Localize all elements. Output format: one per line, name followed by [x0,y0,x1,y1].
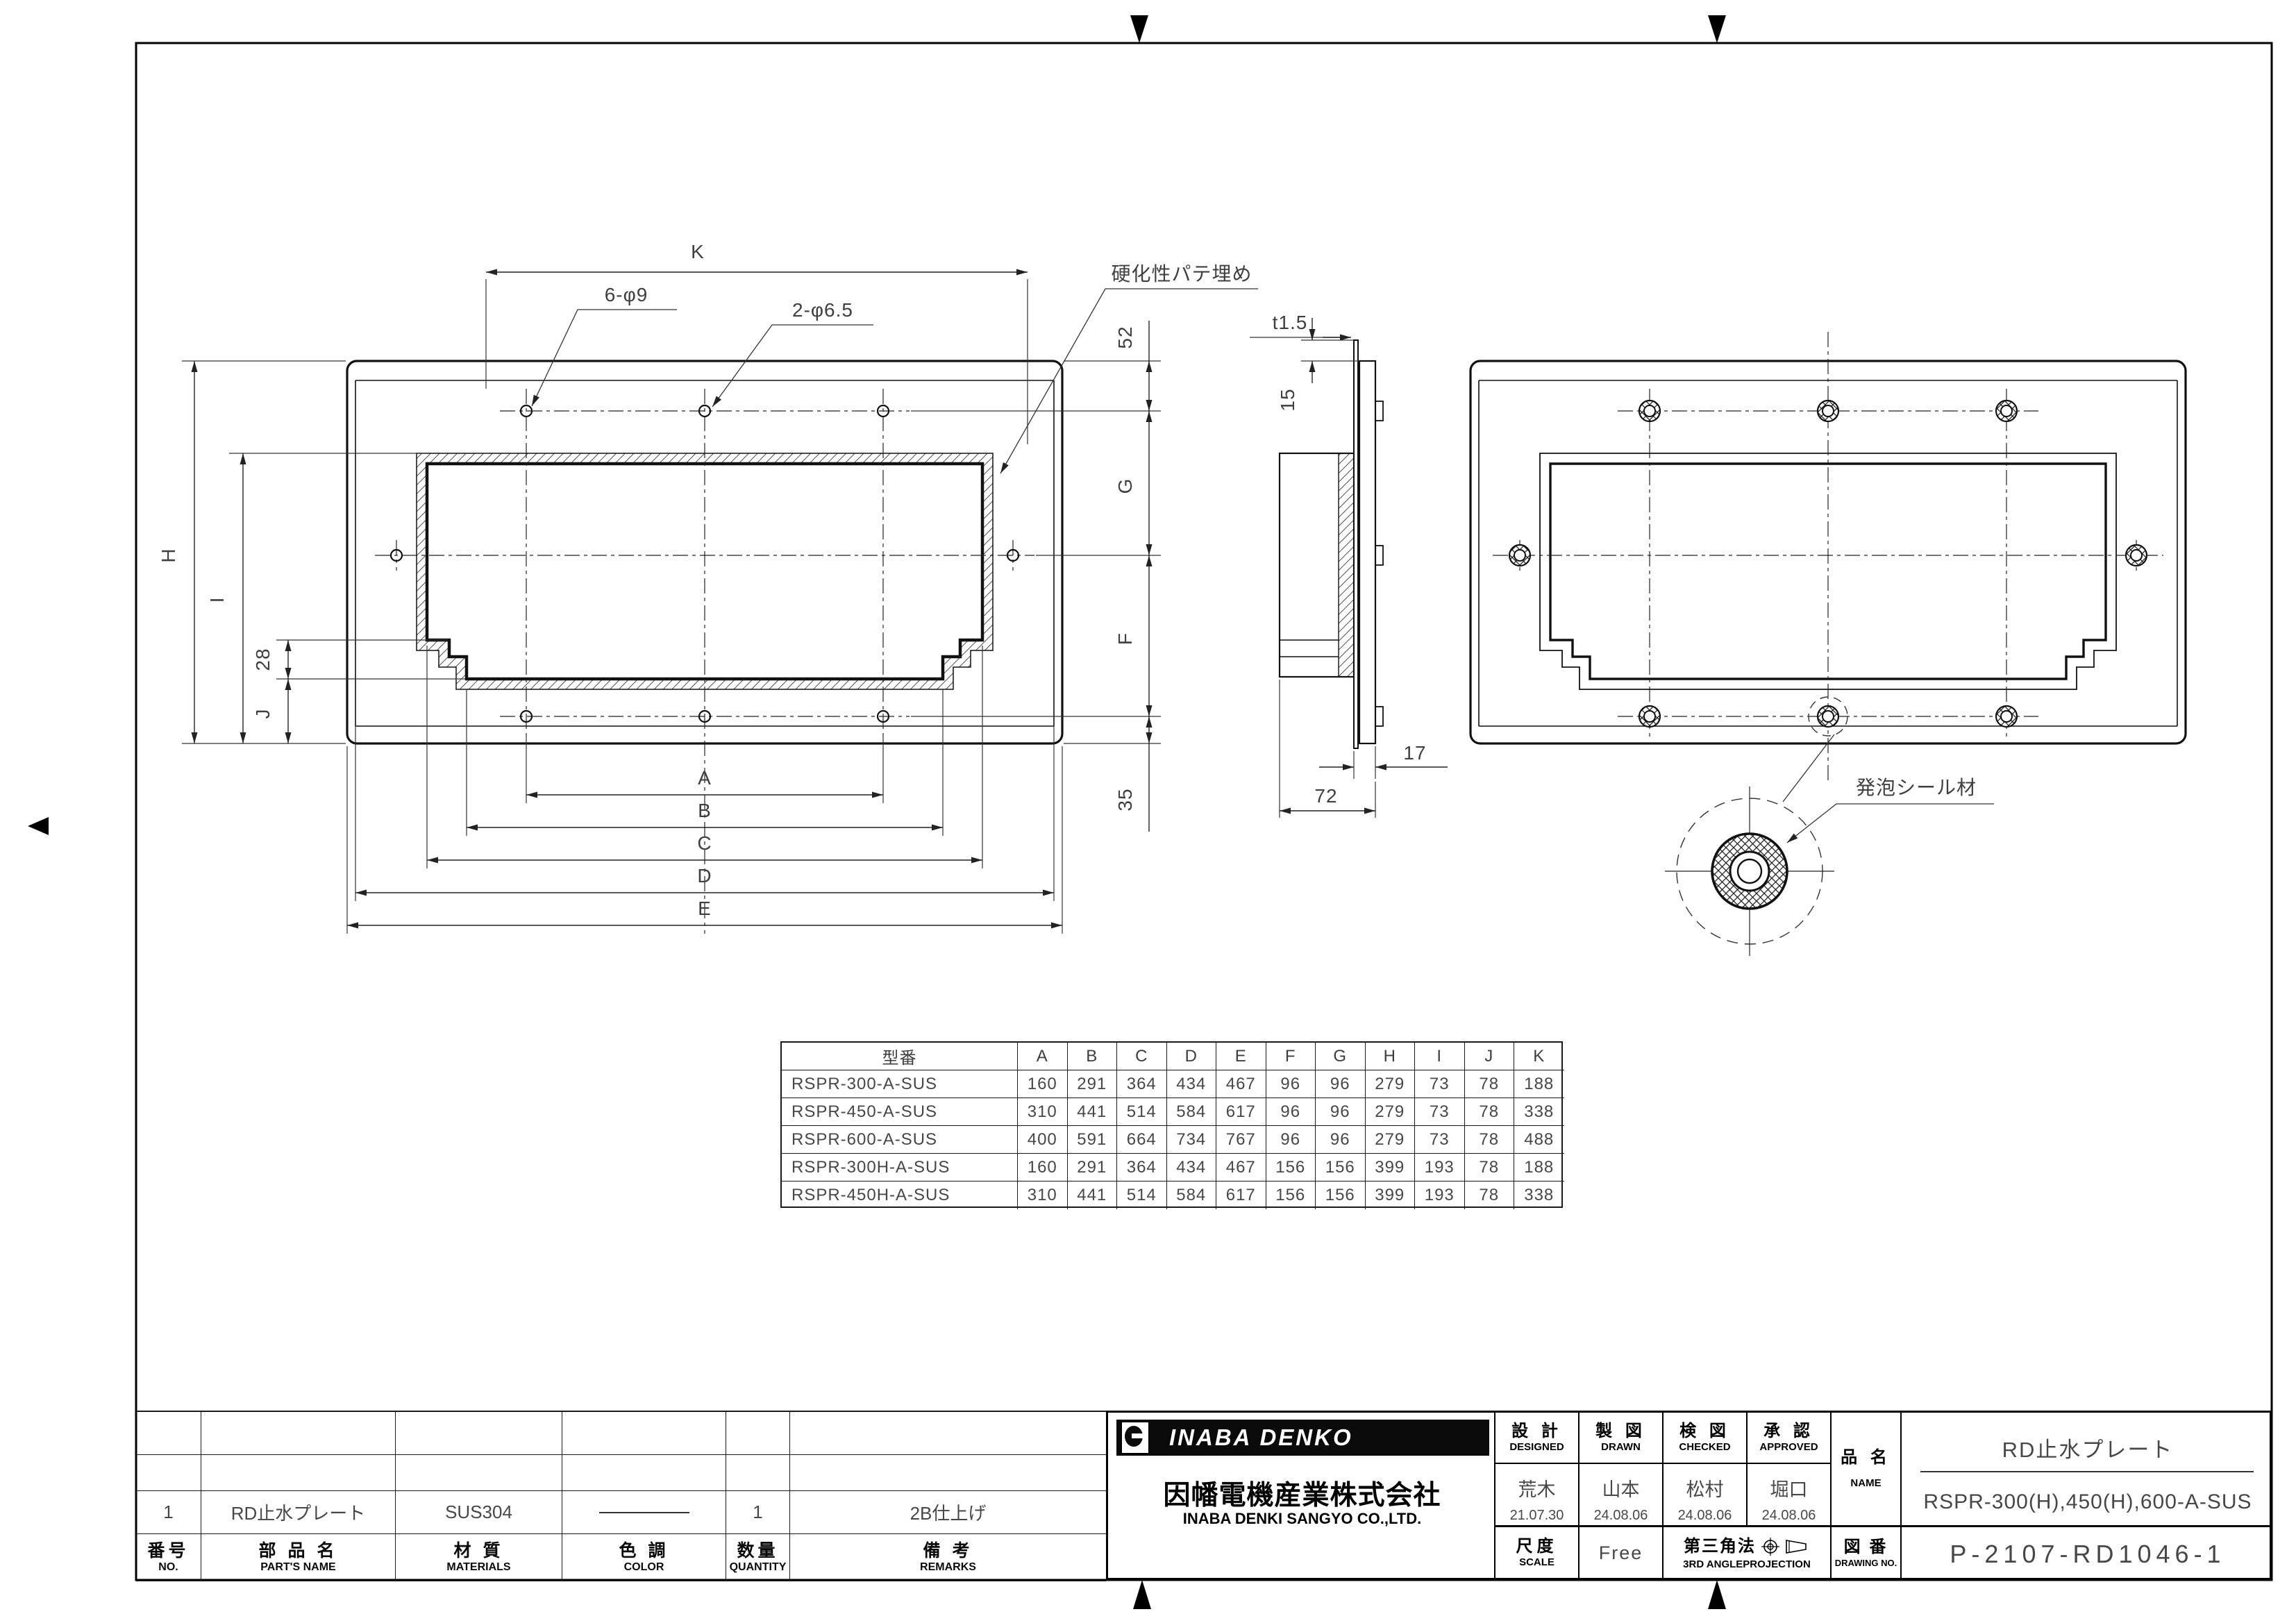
dim-label-e: E [698,898,712,919]
cell: G [1316,1043,1366,1070]
dim-label-f: F [1114,632,1136,645]
dimension-table: 型番 A B C D E F G H I J K RSPR-300-A-SUS … [780,1041,1563,1208]
product-divider [1920,1471,2254,1472]
seal-label-leader [1787,804,1994,843]
dim-label-72: 72 [1314,785,1337,807]
header-jp: 検 図 [1679,1422,1730,1442]
part-color [562,1491,726,1534]
signoff-header-checked: 検 図 CHECKED [1664,1413,1746,1463]
cell: RSPR-450H-A-SUS [782,1181,1018,1209]
cell: 156 [1266,1181,1316,1209]
dim-label-i: I [206,597,228,603]
side-putty-hatch [1339,453,1354,677]
cell: 78 [1465,1154,1515,1181]
part-qty: 1 [726,1491,790,1534]
col-header-no: 番号 NO. [136,1534,201,1581]
scale-value: Free [1579,1528,1662,1578]
cell: 78 [1465,1098,1515,1126]
header-en: DRAWING NO. [1835,1558,1897,1569]
side-tabs [1375,401,1383,726]
empty-cell [790,1412,1106,1455]
inaba-logo-icon [1121,1421,1150,1454]
product-name-label: 品 名 NAME [1832,1413,1900,1525]
brand-band: INABA DENKO [1116,1420,1489,1456]
dim-label-d: D [697,865,712,886]
cell: 664 [1117,1126,1167,1154]
header-en: DRAWN [1601,1441,1641,1454]
signoff-name-checked: 松村 [1664,1468,1746,1507]
signoff-name-designed: 荒木 [1495,1468,1578,1507]
cell: 291 [1068,1154,1118,1181]
header-jp: 品 名 [1841,1448,1891,1468]
color-value-line [599,1512,689,1513]
cell: 338 [1514,1181,1564,1209]
cell: 156 [1316,1154,1366,1181]
dim-label-a: A [698,767,712,789]
cell: 78 [1465,1126,1515,1154]
cell: 310 [1018,1098,1068,1126]
cell: 73 [1415,1126,1465,1154]
dim-label-35: 35 [1114,788,1136,811]
cell: C [1117,1043,1167,1070]
header-en: PART'S NAME [260,1561,335,1574]
cell: 96 [1316,1126,1366,1154]
left-center-mark-icon [28,817,49,835]
header-en: APPROVED [1759,1441,1818,1454]
header-en: CHECKED [1679,1441,1730,1454]
cell: A [1018,1043,1068,1070]
empty-cell [396,1455,562,1491]
header-en: COLOR [624,1561,664,1574]
signoff-date-drawn: 24.08.06 [1579,1506,1662,1525]
company-name-en: INABA DENKI SANGYO CO.,LTD. [1108,1510,1496,1528]
cell: 434 [1167,1070,1217,1098]
cell: RSPR-300-A-SUS [782,1070,1018,1098]
cell: 73 [1415,1070,1465,1098]
header-en: QUANTITY [730,1561,787,1574]
cell: RSPR-450-A-SUS [782,1098,1018,1126]
dim-label-17: 17 [1403,742,1426,764]
product-model: RSPR-300(H),450(H),600-A-SUS [1902,1490,2274,1514]
signoff-date-approved: 24.08.06 [1748,1506,1830,1525]
cell: 584 [1167,1098,1217,1126]
cell: 193 [1415,1181,1465,1209]
part-material: SUS304 [396,1491,562,1534]
header-jp: 図 番 [1844,1538,1888,1558]
side-flange [1359,361,1375,743]
cell: 514 [1117,1181,1167,1209]
empty-cell [201,1412,396,1455]
cell: 767 [1216,1126,1266,1154]
brand-name: INABA DENKO [1169,1424,1353,1451]
label-holes-2phi65: 2-φ6.5 [792,299,853,321]
title-block: INABA DENKO 因幡電機産業株式会社 INABA DENKI SANGY… [1106,1411,2272,1580]
empty-cell [726,1455,790,1491]
cell: 617 [1216,1181,1266,1209]
label-holes-6phi9: 6-φ9 [605,284,648,305]
cell: 96 [1266,1098,1316,1126]
header-jp: 色 調 [619,1541,669,1561]
signoff-header-drawn: 製 図 DRAWN [1579,1413,1662,1463]
cell: 188 [1514,1154,1564,1181]
cell: 617 [1216,1098,1266,1126]
cell: 96 [1316,1098,1366,1126]
header-jp: 第三角法 [1684,1537,1756,1557]
cell: 78 [1465,1181,1515,1209]
cell: 364 [1117,1070,1167,1098]
header-en: NAME [1850,1477,1881,1490]
cell: 400 [1018,1126,1068,1154]
drawing-no-label: 図 番 DRAWING NO. [1832,1528,1900,1578]
empty-cell [562,1412,726,1455]
cell: 441 [1068,1181,1118,1209]
cell: 467 [1216,1154,1266,1181]
cell: 488 [1514,1126,1564,1154]
cell: 96 [1266,1070,1316,1098]
cell: 160 [1018,1070,1068,1098]
product-name: RD止水プレート [1902,1432,2274,1463]
drawing-canvas: K 6-φ9 2-φ6.5 硬化性パテ埋め H I 28 J 52 G F 35… [0,0,2296,1623]
cell: 78 [1465,1070,1515,1098]
cell: J [1465,1043,1515,1070]
bottom-center-mark-icon [1133,1580,1151,1609]
empty-cell [726,1412,790,1455]
header-en: DESIGNED [1509,1441,1564,1454]
dim-label-g: G [1114,478,1136,494]
cell: 279 [1366,1070,1416,1098]
col-header-name: 部 品 名 PART'S NAME [201,1534,396,1581]
cell: 364 [1117,1154,1167,1181]
scale-label: 尺度 SCALE [1495,1528,1578,1578]
drawing-sheet: K 6-φ9 2-φ6.5 硬化性パテ埋め H I 28 J 52 G F 35… [0,0,2296,1623]
cell: 584 [1167,1181,1217,1209]
header-jp: 承 認 [1763,1422,1814,1442]
sheet-frame [28,15,2272,1609]
seal-detail-view: 発泡シール材 [1665,777,1994,956]
cell: 96 [1266,1126,1316,1154]
cell: 291 [1068,1070,1118,1098]
dim-label-15: 15 [1277,388,1298,411]
cell: 734 [1167,1126,1217,1154]
cell: 279 [1366,1126,1416,1154]
dim-label-k: K [691,241,705,262]
side-view: t1.5 15 17 72 [1250,312,1448,818]
header-en: REMARKS [920,1561,976,1574]
part-no: 1 [136,1491,201,1534]
bottom-center-mark2-icon [1708,1580,1726,1609]
cell: E [1216,1043,1266,1070]
front-view: K 6-φ9 2-φ6.5 硬化性パテ埋め H I 28 J 52 G F 35… [158,241,2296,934]
cell: D [1167,1043,1217,1070]
empty-cell [201,1455,396,1491]
header-en: SCALE [1519,1556,1555,1569]
dim-label-28: 28 [252,648,274,671]
cell: 193 [1415,1154,1465,1181]
dim-label-52: 52 [1114,326,1136,348]
cell: 156 [1316,1181,1366,1209]
parts-table: 1 RD止水プレート SUS304 1 2B仕上げ 番号 NO. 部 品 名 P… [136,1411,1106,1580]
cell: 160 [1018,1154,1068,1181]
signoff-header-designed: 設 計 DESIGNED [1495,1413,1578,1463]
cell: 399 [1366,1181,1416,1209]
cell: 434 [1167,1154,1217,1181]
drawing-number: P-2107-RD1046-1 [1902,1527,2274,1582]
cell: 型番 [782,1043,1018,1070]
header-jp: 製 図 [1595,1422,1646,1442]
signoff-name-drawn: 山本 [1579,1468,1662,1507]
dim-label-b: B [698,800,712,821]
signoff-date-designed: 21.07.30 [1495,1506,1578,1525]
cell: 188 [1514,1070,1564,1098]
side-step-lines [1280,640,1339,657]
col-header-remarks: 備 考 REMARKS [790,1534,1106,1581]
cell: K [1514,1043,1564,1070]
empty-cell [790,1455,1106,1491]
header-en: MATERIALS [446,1561,510,1574]
cell: 467 [1216,1070,1266,1098]
col-header-material: 材 質 MATERIALS [396,1534,562,1581]
header-en: NO. [158,1561,178,1574]
header-jp: 尺度 [1516,1537,1558,1557]
cell: I [1415,1043,1465,1070]
cell: 96 [1316,1070,1366,1098]
signoff-header-approved: 承 認 APPROVED [1748,1413,1830,1463]
company-name-jp: 因幡電機産業株式会社 [1108,1474,1496,1513]
cell: F [1266,1043,1316,1070]
cell: 338 [1514,1098,1564,1126]
top-center-mark-icon [1130,15,1148,43]
header-jp: 部 品 名 [259,1541,338,1561]
dim-label-t15: t1.5 [1273,312,1308,333]
part-remarks: 2B仕上げ [790,1491,1106,1534]
empty-cell [136,1455,201,1491]
cell: 279 [1366,1098,1416,1126]
cell: 514 [1117,1098,1167,1126]
dim-label-c: C [697,832,712,854]
part-name: RD止水プレート [201,1491,396,1534]
header-jp: 数量 [737,1541,778,1561]
cell: RSPR-300H-A-SUS [782,1154,1018,1181]
header-jp: 備 考 [923,1541,973,1561]
side-sheet [1354,340,1358,748]
signoff-date-checked: 24.08.06 [1664,1506,1746,1525]
header-jp: 設 計 [1511,1422,1562,1442]
third-angle-projection-icon [1760,1535,1810,1558]
dim-label-j: J [252,709,274,719]
rear-view [1470,332,2186,802]
cell: RSPR-600-A-SUS [782,1126,1018,1154]
dim-label-h: H [158,548,179,562]
empty-cell [562,1455,726,1491]
signoff-name-approved: 堀口 [1748,1468,1830,1507]
label-putty: 硬化性パテ埋め [1111,263,1252,285]
cell: B [1068,1043,1118,1070]
col-header-color: 色 調 COLOR [562,1534,726,1581]
divider [1494,1463,1832,1464]
cell: 441 [1068,1098,1118,1126]
cell: H [1366,1043,1416,1070]
cell: 591 [1068,1126,1118,1154]
cell: 310 [1018,1181,1068,1209]
col-header-qty: 数量 QUANTITY [726,1534,790,1581]
top-center-mark2-icon [1708,15,1726,43]
header-en: 3RD ANGLEPROJECTION [1683,1558,1811,1571]
projection-cell: 第三角法 3RD ANGLEPROJECTION [1664,1528,1830,1578]
side-dimension-lines [1280,318,1448,811]
empty-cell [396,1412,562,1455]
header-jp: 番号 [147,1541,189,1561]
cell: 399 [1366,1154,1416,1181]
header-jp: 材 質 [454,1541,504,1561]
label-foam-seal: 発泡シール材 [1856,777,1977,798]
cell: 156 [1266,1154,1316,1181]
empty-cell [136,1412,201,1455]
cell: 73 [1415,1098,1465,1126]
seal-ring-inner [1730,852,1769,891]
